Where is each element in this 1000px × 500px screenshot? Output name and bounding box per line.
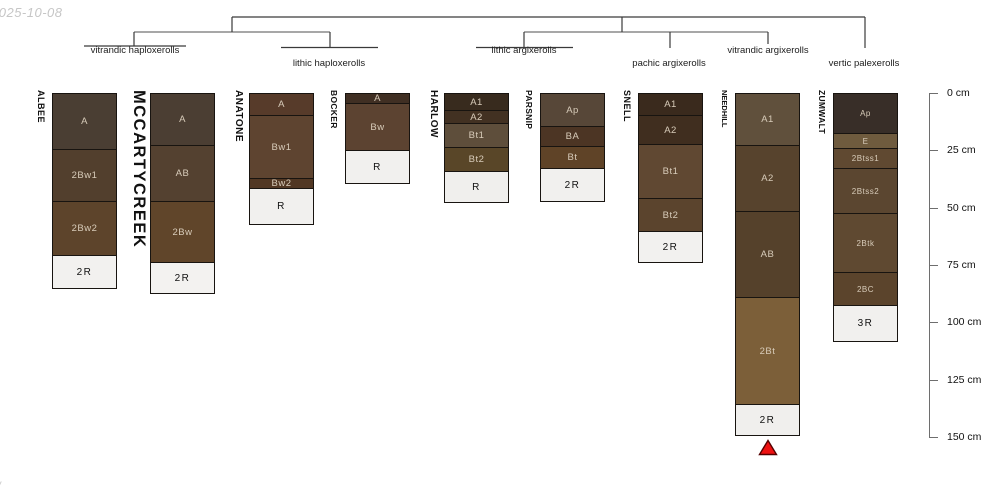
horizon-label: 2R [77, 267, 93, 278]
horizon-snell-2r: 2R [638, 231, 703, 263]
depth-tick-25 [929, 150, 938, 151]
horizon-zumwalt-2btss1: 2Btss1 [833, 148, 898, 169]
horizon-label: 3R [858, 318, 874, 329]
horizon-label: Bt2 [663, 210, 679, 221]
horizon-zumwalt-2btss2: 2Btss2 [833, 168, 898, 214]
horizon-label: R [472, 182, 481, 193]
depth-tick-label-50: 50 cm [947, 203, 976, 214]
horizon-label: A [179, 114, 186, 125]
depth-tick-125 [929, 380, 938, 381]
depth-tick-0 [929, 93, 938, 94]
horizon-harlow-r: R [444, 171, 509, 203]
horizon-label: Ap [566, 105, 579, 116]
column-header-harlow: HARLOW [423, 90, 443, 138]
group-label-vitrandic-haploxerolls: vitrandic haploxerolls [91, 46, 180, 56]
horizon-albee-2bw2: 2Bw2 [52, 201, 117, 256]
horizon-harlow-bt2: Bt2 [444, 147, 509, 172]
column-header-needhill: NEEDHILL [714, 90, 734, 128]
horizon-mccartycreek-2bw: 2Bw [150, 201, 215, 263]
column-header-parsnip: PARSNIP [519, 90, 539, 129]
horizon-label: BA [566, 131, 580, 142]
horizon-label: E [863, 137, 869, 146]
soil-column-anatone: ABw1Bw2R [249, 93, 314, 225]
horizon-needhill-2r: 2R [735, 404, 800, 436]
horizon-label: Bt1 [469, 130, 485, 141]
column-header-anatone: ANATONE [228, 90, 248, 142]
horizon-harlow-a2: A2 [444, 110, 509, 124]
horizon-anatone-r: R [249, 188, 314, 225]
horizon-label: AB [176, 168, 190, 179]
horizon-label: Bt [568, 152, 578, 163]
horizon-zumwalt-ap: Ap [833, 93, 898, 134]
horizon-bocker-r: R [345, 150, 410, 184]
horizon-anatone-a: A [249, 93, 314, 116]
horizon-label: 2R [565, 180, 581, 191]
sample-marker-triangle [758, 439, 778, 456]
horizon-parsnip-ap: Ap [540, 93, 605, 127]
horizon-mccartycreek-ab: AB [150, 145, 215, 202]
soil-column-needhill: A1A2AB2Bt2R [735, 93, 800, 436]
horizon-label: 2Bw [173, 227, 193, 238]
group-label-vertic-palexerolls: vertic palexerolls [829, 59, 900, 69]
group-label-vitrandic-argixerolls: vitrandic argixerolls [727, 46, 808, 56]
depth-tick-100 [929, 322, 938, 323]
depth-tick-label-75: 75 cm [947, 260, 976, 271]
horizon-label: Bw [370, 122, 384, 133]
horizon-label: A2 [664, 125, 677, 136]
corner-watermark-mark: / [0, 479, 1, 494]
group-label-pachic-argixerolls: pachic argixerolls [632, 59, 705, 69]
horizon-label: 2R [175, 273, 191, 284]
soil-column-bocker: ABwR [345, 93, 410, 184]
depth-tick-75 [929, 265, 938, 266]
depth-tick-label-0: 0 cm [947, 88, 970, 99]
horizon-label: 2Bw2 [72, 223, 98, 234]
horizon-mccartycreek-a: A [150, 93, 215, 146]
soil-taxonomy-figure: 2025-10-08 vitrandic haploxerolls lithic… [0, 0, 1000, 500]
horizon-label: 2R [663, 242, 679, 253]
horizon-albee-2bw1: 2Bw1 [52, 149, 117, 202]
column-header-snell: SNELL [617, 90, 637, 122]
horizon-snell-bt1: Bt1 [638, 144, 703, 199]
horizon-zumwalt-2btk: 2Btk [833, 213, 898, 273]
horizon-harlow-bt1: Bt1 [444, 123, 509, 148]
horizon-label: 2Bw1 [72, 170, 98, 181]
soil-column-albee: A2Bw12Bw22R [52, 93, 117, 289]
depth-tick-label-125: 125 cm [947, 375, 981, 386]
horizon-label: 2Btss1 [852, 154, 879, 163]
horizon-label: Bw1 [272, 142, 292, 153]
depth-tick-150 [929, 437, 938, 438]
horizon-harlow-a1: A1 [444, 93, 509, 111]
horizon-label: A [81, 116, 88, 127]
horizon-needhill-2bt: 2Bt [735, 297, 800, 405]
horizon-snell-a2: A2 [638, 115, 703, 145]
soil-column-zumwalt: ApE2Btss12Btss22Btk2BC3R [833, 93, 898, 342]
horizon-bocker-bw: Bw [345, 103, 410, 151]
column-header-mccartycreek: MCCARTYCREEK [129, 90, 149, 248]
depth-tick-label-100: 100 cm [947, 317, 981, 328]
horizon-label: AB [761, 249, 775, 260]
soil-column-harlow: A1A2Bt1Bt2R [444, 93, 509, 203]
column-header-albee: ALBEE [31, 90, 51, 123]
horizon-label: A1 [664, 99, 677, 110]
horizon-label: 2Btss2 [852, 187, 879, 196]
horizon-label: A2 [470, 112, 483, 123]
depth-tick-label-150: 150 cm [947, 432, 981, 443]
horizon-label: Ap [860, 109, 871, 118]
horizon-snell-bt2: Bt2 [638, 198, 703, 232]
horizon-albee-2r: 2R [52, 255, 117, 289]
horizon-label: 2Btk [856, 239, 874, 248]
soil-column-snell: A1A2Bt1Bt22R [638, 93, 703, 263]
horizon-parsnip-2r: 2R [540, 168, 605, 202]
horizon-parsnip-ba: BA [540, 126, 605, 147]
depth-tick-50 [929, 208, 938, 209]
horizon-label: 2BC [857, 285, 874, 294]
soil-column-mccartycreek: AAB2Bw2R [150, 93, 215, 294]
horizon-label: A1 [470, 97, 483, 108]
horizon-albee-a: A [52, 93, 117, 150]
horizon-needhill-a2: A2 [735, 145, 800, 212]
depth-tick-label-25: 25 cm [947, 145, 976, 156]
horizon-label: R [373, 162, 382, 173]
horizon-label: Bt1 [663, 166, 679, 177]
horizon-needhill-a1: A1 [735, 93, 800, 146]
horizon-label: R [277, 201, 286, 212]
horizon-zumwalt-3r: 3R [833, 305, 898, 342]
horizon-label: Bt2 [469, 154, 485, 165]
horizon-label: 2R [760, 415, 776, 426]
horizon-label: 2Bt [760, 346, 776, 357]
horizon-zumwalt-2bc: 2BC [833, 272, 898, 306]
column-header-bocker: BOCKER [324, 90, 344, 129]
horizon-parsnip-bt: Bt [540, 146, 605, 169]
soil-column-parsnip: ApBABt2R [540, 93, 605, 202]
group-label-lithic-argixerolls: lithic argixerolls [492, 46, 557, 56]
group-label-lithic-haploxerolls: lithic haploxerolls [293, 59, 365, 69]
column-header-zumwalt: ZUMWALT [812, 90, 832, 134]
horizon-label: A2 [761, 173, 774, 184]
horizon-snell-a1: A1 [638, 93, 703, 116]
horizon-label: A [278, 99, 285, 110]
horizon-zumwalt-e: E [833, 133, 898, 149]
horizon-label: A1 [761, 114, 774, 125]
horizon-needhill-ab: AB [735, 211, 800, 298]
horizon-mccartycreek-2r: 2R [150, 262, 215, 294]
horizon-anatone-bw1: Bw1 [249, 115, 314, 179]
